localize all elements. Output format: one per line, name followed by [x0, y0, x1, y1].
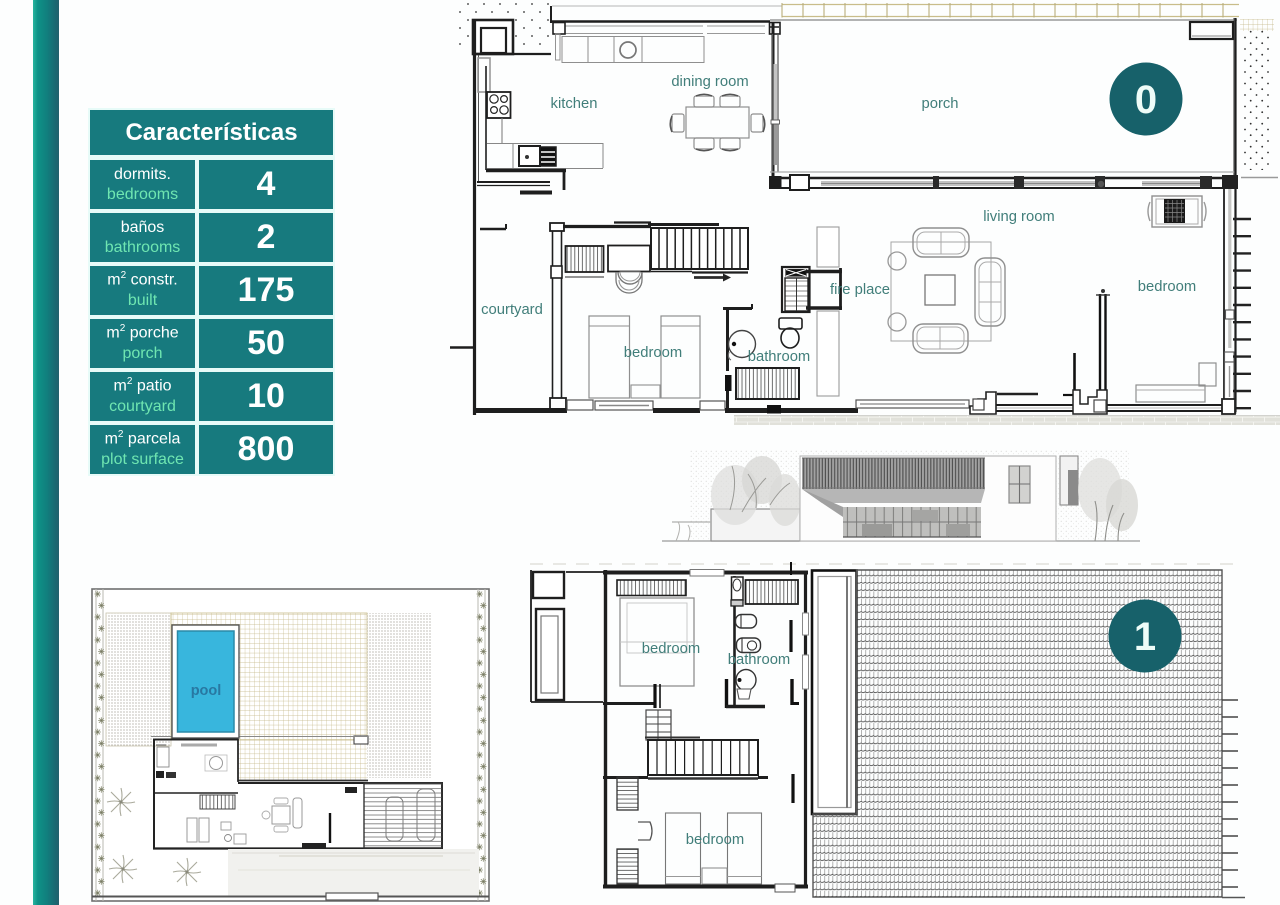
svg-text:courtyard: courtyard	[481, 302, 543, 318]
svg-text:0: 0	[1135, 78, 1157, 122]
svg-text:bedroom: bedroom	[686, 832, 744, 848]
svg-text:kitchen: kitchen	[551, 96, 598, 112]
svg-text:bedroom: bedroom	[624, 345, 682, 361]
svg-text:bathroom: bathroom	[748, 349, 811, 365]
svg-text:bedroom: bedroom	[1138, 279, 1196, 295]
svg-text:1: 1	[1134, 615, 1156, 659]
svg-text:porch: porch	[921, 96, 958, 112]
svg-text:dining room: dining room	[671, 74, 748, 90]
svg-text:bathroom: bathroom	[728, 652, 791, 668]
svg-text:bedroom: bedroom	[642, 641, 700, 657]
svg-text:fire place: fire place	[830, 282, 890, 298]
svg-text:living room: living room	[983, 209, 1055, 225]
svg-text:pool: pool	[191, 683, 222, 699]
